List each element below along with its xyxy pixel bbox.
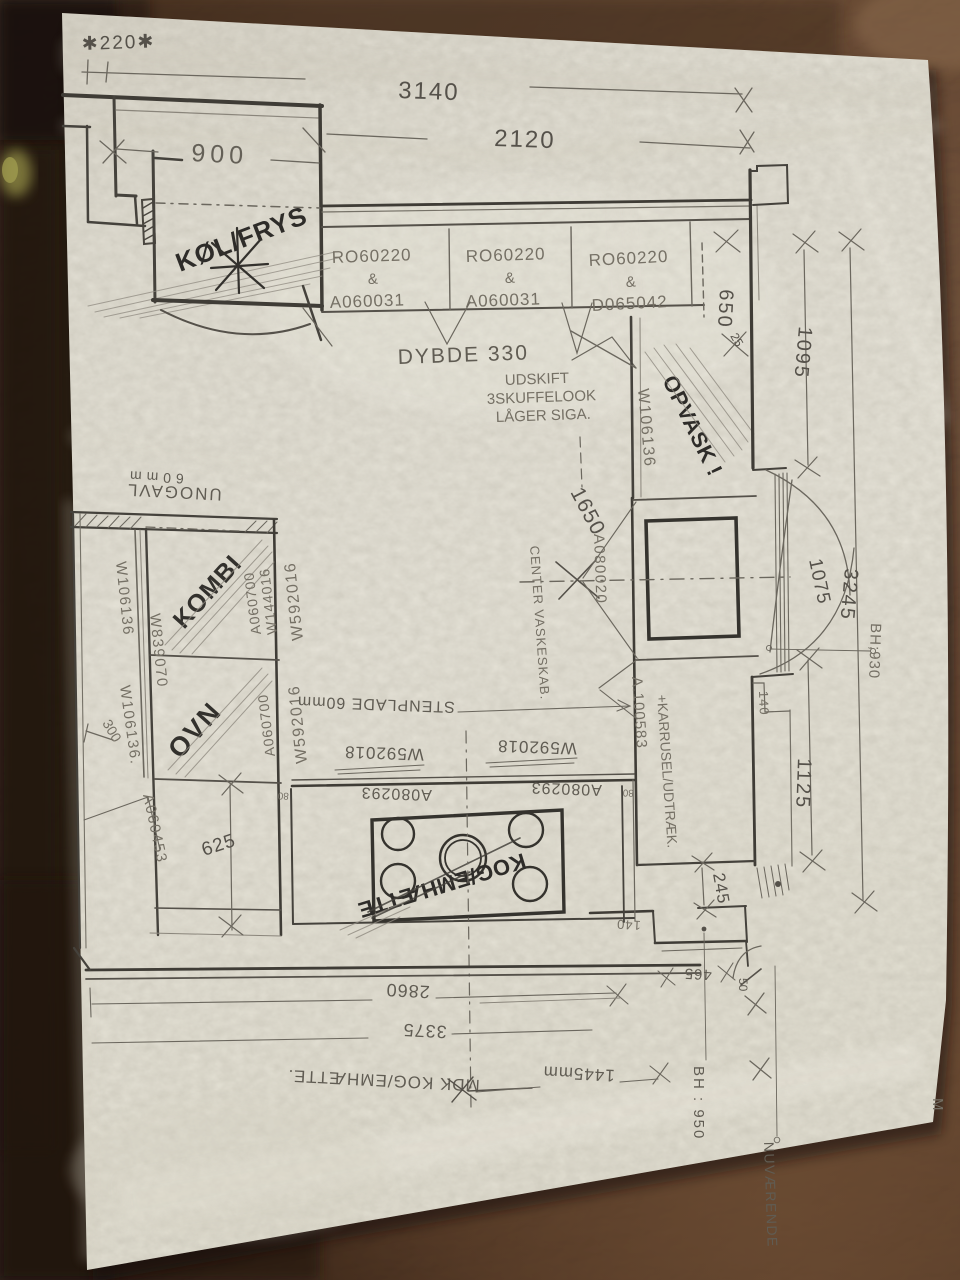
svg-text:A060031: A060031 (465, 289, 541, 311)
svg-text:650: 650 (713, 289, 737, 329)
svg-text:3375: 3375 (402, 1020, 447, 1042)
svg-text:RO60220: RO60220 (465, 244, 545, 266)
svg-text:A060031: A060031 (329, 290, 405, 312)
svg-text:80: 80 (277, 789, 289, 801)
svg-text:&: & (505, 270, 516, 287)
svg-text:A080293: A080293 (531, 779, 603, 798)
svg-text:900: 900 (191, 139, 249, 170)
svg-text:2120: 2120 (494, 125, 556, 154)
svg-text:✱220✱: ✱220✱ (81, 31, 155, 55)
svg-text:M: M (929, 1098, 946, 1111)
svg-text:2860: 2860 (385, 980, 430, 1002)
svg-text:LÅGER SIGA.: LÅGER SIGA. (496, 406, 592, 426)
svg-text:DYBDE 330: DYBDE 330 (397, 341, 529, 369)
svg-text:3245: 3245 (835, 568, 861, 622)
svg-text:W592018: W592018 (344, 742, 424, 764)
svg-text:140: 140 (756, 691, 772, 716)
svg-text:&: & (368, 271, 379, 288)
svg-text:1125: 1125 (791, 758, 815, 810)
svg-text:D065042: D065042 (591, 292, 668, 315)
svg-text:BH;930: BH;930 (865, 623, 884, 680)
svg-text:1095: 1095 (789, 326, 815, 380)
svg-text:&: & (625, 273, 636, 291)
svg-text:1445mm: 1445mm (542, 1062, 615, 1085)
svg-text:465: 465 (683, 965, 712, 983)
svg-text:W592018: W592018 (497, 736, 577, 758)
svg-text:BH : 950: BH : 950 (690, 1066, 707, 1140)
svg-text:50: 50 (736, 978, 750, 992)
svg-text:RO60220: RO60220 (331, 245, 411, 267)
svg-text:3140: 3140 (398, 77, 460, 106)
svg-text:80: 80 (622, 786, 634, 798)
svg-text:UDSKIFT: UDSKIFT (505, 370, 570, 389)
svg-text:A080293: A080293 (361, 784, 433, 803)
